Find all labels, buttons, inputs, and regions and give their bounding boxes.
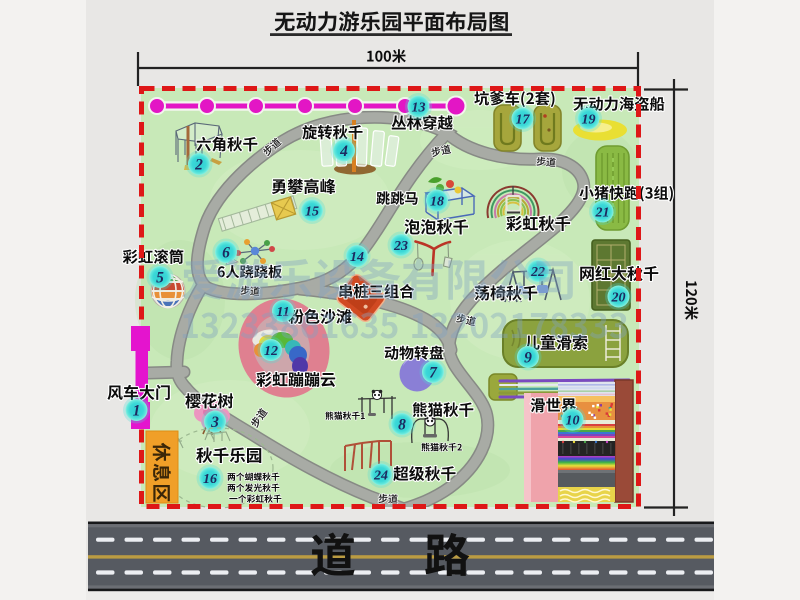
svg-text:12: 12 [264,344,278,359]
svg-text:19: 19 [582,112,596,127]
svg-text:6: 6 [222,244,230,261]
svg-text:4: 4 [339,143,348,160]
svg-text:15: 15 [305,204,319,219]
svg-text:21: 21 [595,205,610,220]
svg-text:10: 10 [566,413,580,428]
svg-text:18: 18 [430,194,444,209]
svg-text:2: 2 [194,156,203,173]
svg-text:24: 24 [373,468,388,483]
svg-text:20: 20 [611,290,626,305]
svg-text:7: 7 [429,364,438,381]
svg-text:14: 14 [350,250,364,265]
svg-text:9: 9 [524,349,532,366]
svg-text:23: 23 [393,239,408,254]
svg-text:17: 17 [516,112,531,127]
svg-text:13: 13 [412,100,426,115]
svg-text:1: 1 [133,402,141,419]
svg-text:5: 5 [156,269,164,286]
svg-text:8: 8 [398,416,406,433]
svg-text:16: 16 [203,472,217,487]
